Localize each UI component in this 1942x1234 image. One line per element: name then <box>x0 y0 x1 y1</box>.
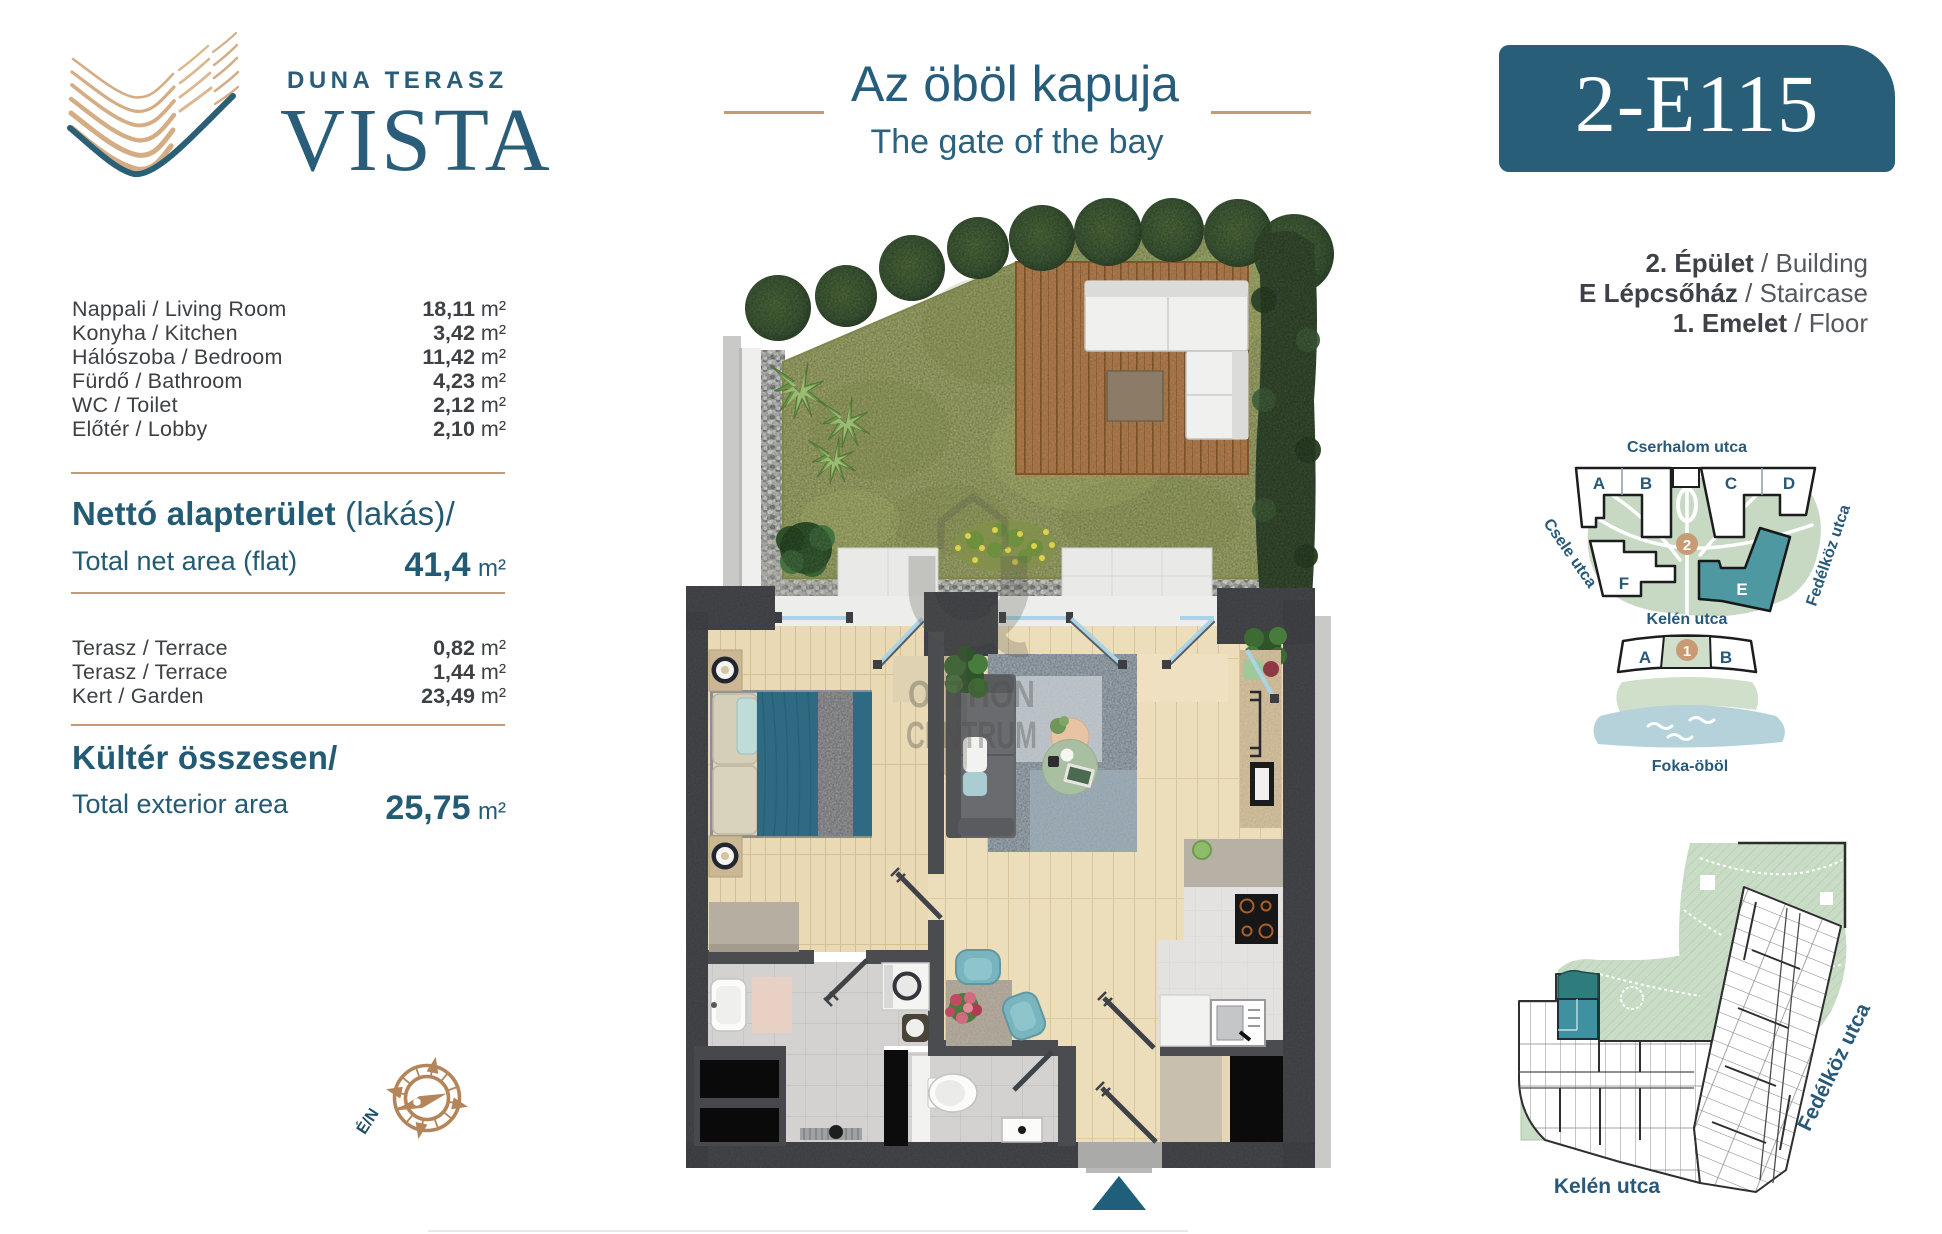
svg-text:OTTHON: OTTHON <box>908 674 1035 716</box>
svg-text:Foka-öböl: Foka-öböl <box>1652 758 1728 775</box>
svg-text:CENTRUM: CENTRUM <box>906 715 1037 757</box>
svg-text:E: E <box>1736 580 1747 599</box>
svg-text:B: B <box>1640 474 1652 493</box>
svg-text:C: C <box>1725 474 1737 493</box>
svg-text:2: 2 <box>1683 537 1691 554</box>
svg-text:Cserhalom utca: Cserhalom utca <box>1627 439 1747 456</box>
svg-text:1: 1 <box>1683 643 1691 660</box>
svg-text:É/N: É/N <box>352 1105 382 1138</box>
svg-text:D: D <box>1783 474 1795 493</box>
svg-text:B: B <box>1720 648 1732 667</box>
svg-text:Kelén utca: Kelén utca <box>1647 611 1728 628</box>
svg-text:Kelén utca: Kelén utca <box>1554 1175 1661 1198</box>
svg-text:A: A <box>1593 474 1605 493</box>
svg-text:A: A <box>1639 648 1651 667</box>
svg-text:F: F <box>1619 574 1629 593</box>
